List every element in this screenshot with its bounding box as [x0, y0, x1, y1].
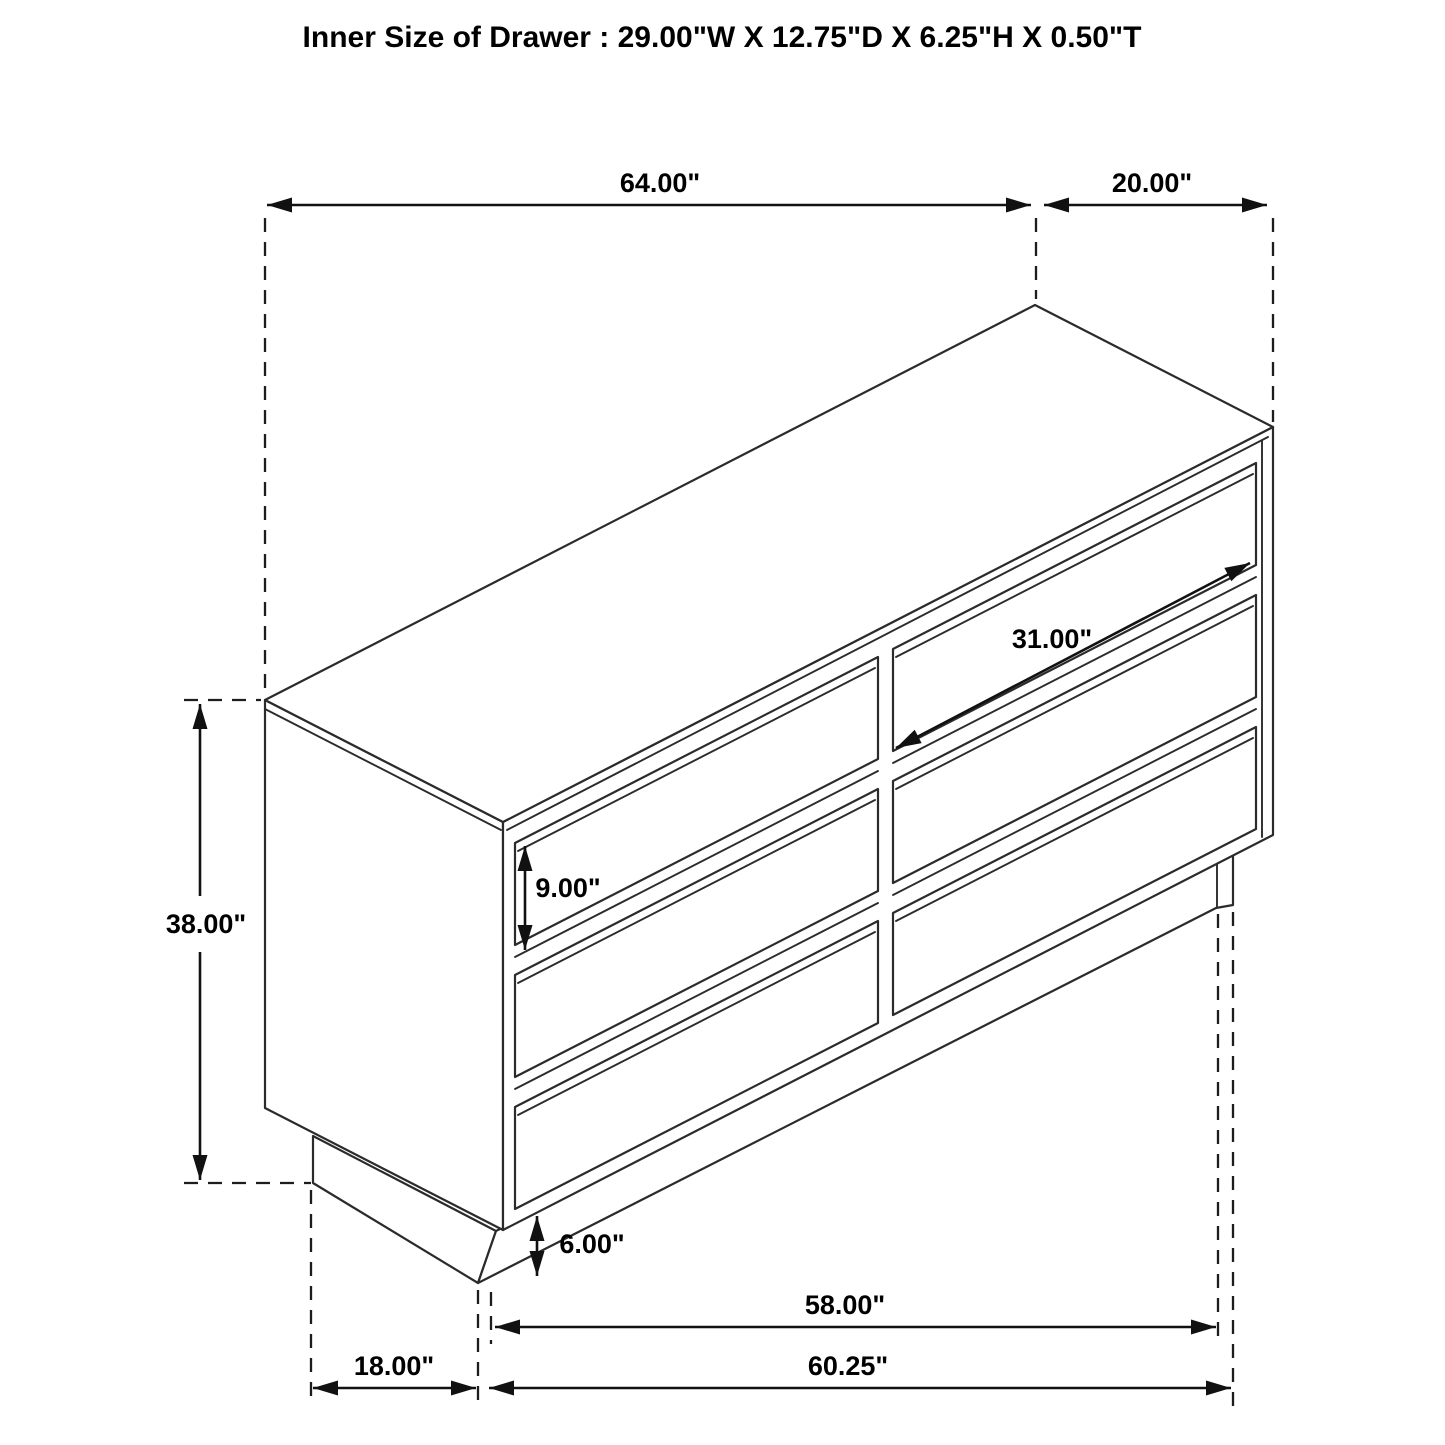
dimension-label-base-front-width: 58.00" — [805, 1290, 885, 1320]
dresser-drawing — [265, 305, 1273, 1283]
dimension-label-top-width: 64.00" — [620, 168, 700, 198]
dimension-label-overall-height: 38.00" — [166, 909, 246, 939]
dimension-base-front-width: 58.00" — [495, 1290, 1216, 1327]
dimension-label-drawer-width: 31.00" — [1012, 624, 1092, 654]
dimension-base-overall-width: 60.25" — [489, 1351, 1231, 1388]
dresser-dimension-drawing: Inner Size of Drawer : 29.00"W X 12.75"D… — [0, 0, 1445, 1445]
dimension-base-side-depth: 18.00" — [313, 1351, 476, 1388]
dimension-label-base-side-depth: 18.00" — [354, 1351, 434, 1381]
dimension-label-drawer-height: 9.00" — [535, 873, 600, 903]
page-title: Inner Size of Drawer : 29.00"W X 12.75"D… — [303, 21, 1142, 54]
dimension-label-base-overall-width: 60.25" — [808, 1351, 888, 1381]
dimension-overall-height: 38.00" — [166, 704, 246, 1180]
dimension-label-leg-height: 6.00" — [559, 1229, 624, 1259]
diagram-canvas: Inner Size of Drawer : 29.00"W X 12.75"D… — [0, 0, 1445, 1445]
dimension-label-top-depth: 20.00" — [1112, 168, 1192, 198]
dimension-top-width: 64.00" — [267, 168, 1031, 205]
dimension-top-depth: 20.00" — [1044, 168, 1267, 205]
